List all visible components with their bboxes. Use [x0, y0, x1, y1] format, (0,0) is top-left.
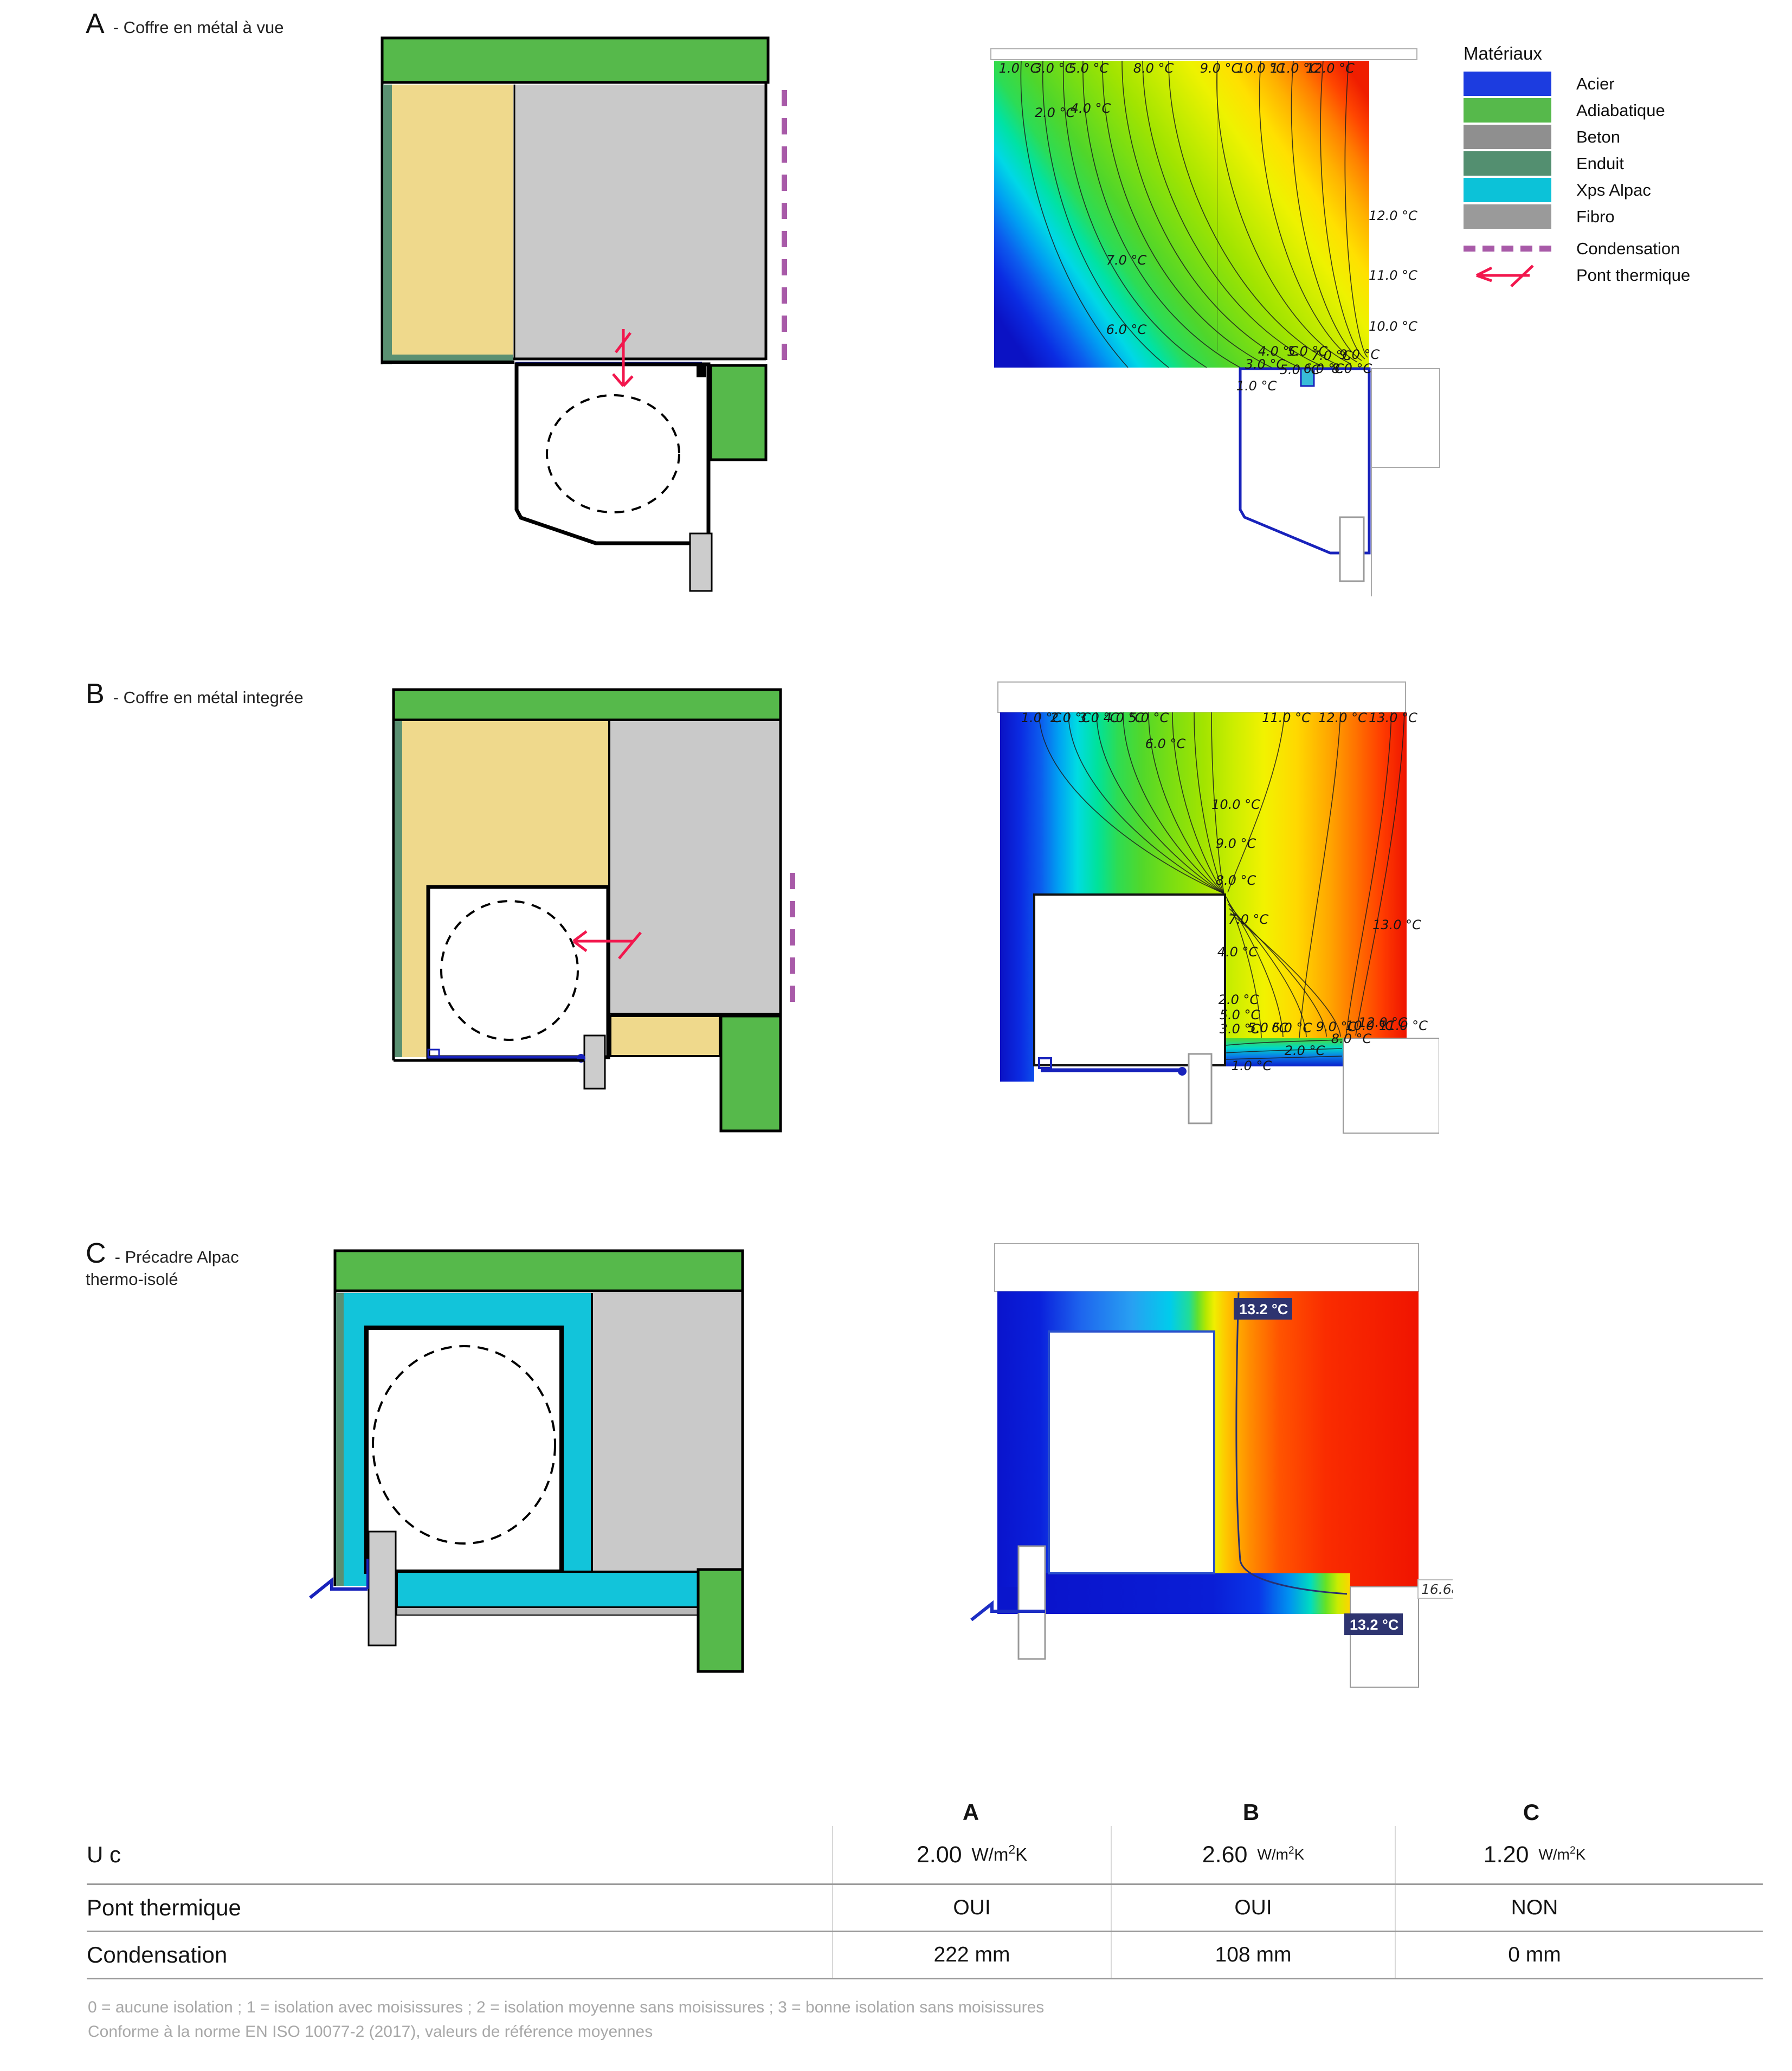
svg-text:1.0 °C: 1.0 °C: [1236, 378, 1277, 394]
thermal-plot-c: 13.2 °C 13.2 °C 16.68: [965, 1240, 1453, 1690]
pont-value-b: OUI: [1111, 1885, 1395, 1931]
section-a-label: - Coffre en métal à vue: [113, 18, 284, 37]
row-label-condensation: Condensation: [87, 1942, 832, 1968]
svg-text:8.0 °C: 8.0 °C: [1331, 1031, 1372, 1046]
legend-item-pont-thermique: Pont thermique: [1464, 262, 1778, 288]
svg-text:13.0 °C: 13.0 °C: [1372, 917, 1421, 932]
footnote-scale: 0 = aucune isolation ; 1 = isolation ave…: [88, 1995, 1044, 2019]
svg-text:8.0 °C: 8.0 °C: [1133, 61, 1174, 76]
diagram-c-shapes: [310, 1251, 743, 1671]
svg-text:9.0 °C: 9.0 °C: [1339, 347, 1380, 362]
diagram-c-cross-section: [304, 1239, 791, 1689]
acier-swatch: [1464, 72, 1551, 96]
enduit-swatch: [1464, 151, 1551, 176]
section-a-letter: A: [86, 8, 105, 40]
legend-item-enduit: Enduit: [1464, 150, 1778, 177]
svg-text:9.0 °C: 9.0 °C: [1200, 61, 1241, 76]
svg-text:9.0 °C: 9.0 °C: [1216, 836, 1256, 851]
condensation-dash-icon: [1464, 246, 1551, 252]
legend-item-xps-alpac: Xps Alpac: [1464, 177, 1778, 203]
svg-text:8.0 °C: 8.0 °C: [1332, 361, 1372, 376]
legend-item-condensation: Condensation: [1464, 235, 1778, 262]
diagram-a-shapes: [381, 38, 784, 591]
document-page: A - Coffre en métal à vue B - Coffre en …: [0, 0, 1792, 2071]
uc-value-c: 1.20W/m2K: [1395, 1826, 1673, 1883]
table-row-uc: U c 2.00W/m2K 2.60W/m2K 1.20W/m2K: [87, 1826, 1763, 1885]
svg-text:10.0 °C: 10.0 °C: [1369, 319, 1417, 334]
temp-marker-bottom: 13.2 °C: [1350, 1617, 1398, 1633]
svg-text:11.0 °C: 11.0 °C: [1369, 268, 1417, 283]
condensation-value-b: 108 mm: [1111, 1932, 1395, 1978]
section-c-letter: C: [86, 1237, 106, 1270]
pont-value-a: OUI: [832, 1885, 1111, 1931]
table-row-condensation: Condensation 222 mm 108 mm 0 mm: [87, 1932, 1763, 1979]
materials-legend: Matériaux Acier Adiabatique Beton Enduit…: [1464, 43, 1778, 288]
svg-text:11.0 °C: 11.0 °C: [1262, 710, 1311, 725]
col-header-a: A: [832, 1799, 1110, 1825]
adiabatique-swatch: [1464, 98, 1551, 123]
legend-item-fibro: Fibro: [1464, 203, 1778, 230]
row-label-uc: U c: [87, 1842, 832, 1868]
svg-text:12.0 °C: 12.0 °C: [1306, 61, 1355, 76]
svg-text:12.0 °C: 12.0 °C: [1318, 710, 1367, 725]
legend-item-acier: Acier: [1464, 70, 1778, 97]
svg-text:2.0 °C: 2.0 °C: [1285, 1043, 1325, 1058]
temp-marker-right: 16.68: [1421, 1581, 1453, 1597]
legend-title: Matériaux: [1464, 43, 1778, 64]
footnotes: 0 = aucune isolation ; 1 = isolation ave…: [88, 1995, 1044, 2044]
svg-text:10.0 °C: 10.0 °C: [1211, 797, 1260, 812]
fibro-swatch: [1464, 204, 1551, 229]
svg-text:4.0 °C: 4.0 °C: [1217, 944, 1258, 960]
window-frame-a: [690, 533, 712, 591]
diagram-a-cross-section: [377, 34, 797, 600]
svg-text:4.0 °C: 4.0 °C: [1071, 101, 1111, 116]
roller-box-outline-c: [1049, 1332, 1214, 1573]
svg-text:6.0 °C: 6.0 °C: [1272, 1020, 1312, 1035]
svg-text:12.0 °C: 12.0 °C: [1369, 208, 1417, 223]
thermal-bridge-arrow-icon: [1464, 261, 1551, 290]
thermal-a-field: [991, 49, 1417, 368]
window-frame-c: [369, 1532, 396, 1645]
section-b-letter: B: [86, 678, 105, 710]
uc-value-a: 2.00W/m2K: [832, 1826, 1111, 1883]
svg-text:5.0 °C: 5.0 °C: [1129, 710, 1169, 725]
svg-text:7.0 °C: 7.0 °C: [1106, 253, 1147, 268]
table-header-row: A B C: [87, 1799, 1763, 1826]
diagram-b-cross-section: [374, 682, 802, 1137]
thermal-a-structure: [1240, 369, 1440, 596]
beton-swatch: [1464, 125, 1551, 149]
temp-marker-top: 13.2 °C: [1239, 1301, 1288, 1317]
pont-value-c: NON: [1395, 1885, 1673, 1931]
section-b-title: B - Coffre en métal integrée: [86, 678, 304, 710]
section-a-title: A - Coffre en métal à vue: [86, 8, 283, 40]
svg-text:6.0 °C: 6.0 °C: [1106, 322, 1147, 337]
comparison-table: A B C U c 2.00W/m2K 2.60W/m2K 1.20W/m2K …: [87, 1799, 1763, 1979]
thermal-plot-a: 1.0 °C 3.0 °C 5.0 °C 8.0 °C 9.0 °C 10.0 …: [990, 48, 1442, 601]
svg-text:1.0 °C: 1.0 °C: [1232, 1058, 1272, 1073]
col-header-c: C: [1393, 1799, 1670, 1825]
section-c-title: C - Précadre Alpac thermo-isolé: [86, 1237, 239, 1289]
diagram-b-shapes: [394, 690, 792, 1131]
svg-text:2.0 °C: 2.0 °C: [1035, 105, 1075, 120]
roller-box-outline-b: [1034, 895, 1225, 1065]
svg-text:5.0 °C: 5.0 °C: [1068, 61, 1109, 76]
uc-value-b: 2.60W/m2K: [1111, 1826, 1395, 1883]
col-header-b: B: [1110, 1799, 1393, 1825]
legend-item-beton: Beton: [1464, 124, 1778, 150]
section-c-label-line2: thermo-isolé: [86, 1270, 239, 1289]
row-label-pont: Pont thermique: [87, 1895, 832, 1921]
thermal-plot-b: 1.0 °C 2.0 °C 3.0 °C 4.0 °C 5.0 °C 11.0 …: [989, 679, 1439, 1134]
condensation-value-c: 0 mm: [1395, 1932, 1673, 1978]
condensation-value-a: 222 mm: [832, 1932, 1111, 1978]
roller-box-b: [428, 887, 608, 1057]
svg-text:2.0 °C: 2.0 °C: [1219, 992, 1259, 1007]
legend-item-adiabatique: Adiabatique: [1464, 97, 1778, 124]
svg-text:13.0 °C: 13.0 °C: [1369, 710, 1417, 725]
svg-text:8.0 °C: 8.0 °C: [1216, 873, 1256, 888]
section-b-label: - Coffre en métal integrée: [113, 688, 304, 708]
svg-text:7.0 °C: 7.0 °C: [1228, 912, 1269, 927]
window-frame-b: [584, 1035, 605, 1089]
svg-text:6.0 °C: 6.0 °C: [1145, 736, 1186, 751]
section-c-label: - Précadre Alpac: [115, 1247, 239, 1267]
table-row-pont-thermique: Pont thermique OUI OUI NON: [87, 1885, 1763, 1932]
footnote-norme: Conforme à la norme EN ISO 10077-2 (2017…: [88, 2019, 1044, 2044]
xps-alpac-swatch: [1464, 178, 1551, 202]
svg-text:11.0 °C: 11.0 °C: [1379, 1018, 1428, 1033]
